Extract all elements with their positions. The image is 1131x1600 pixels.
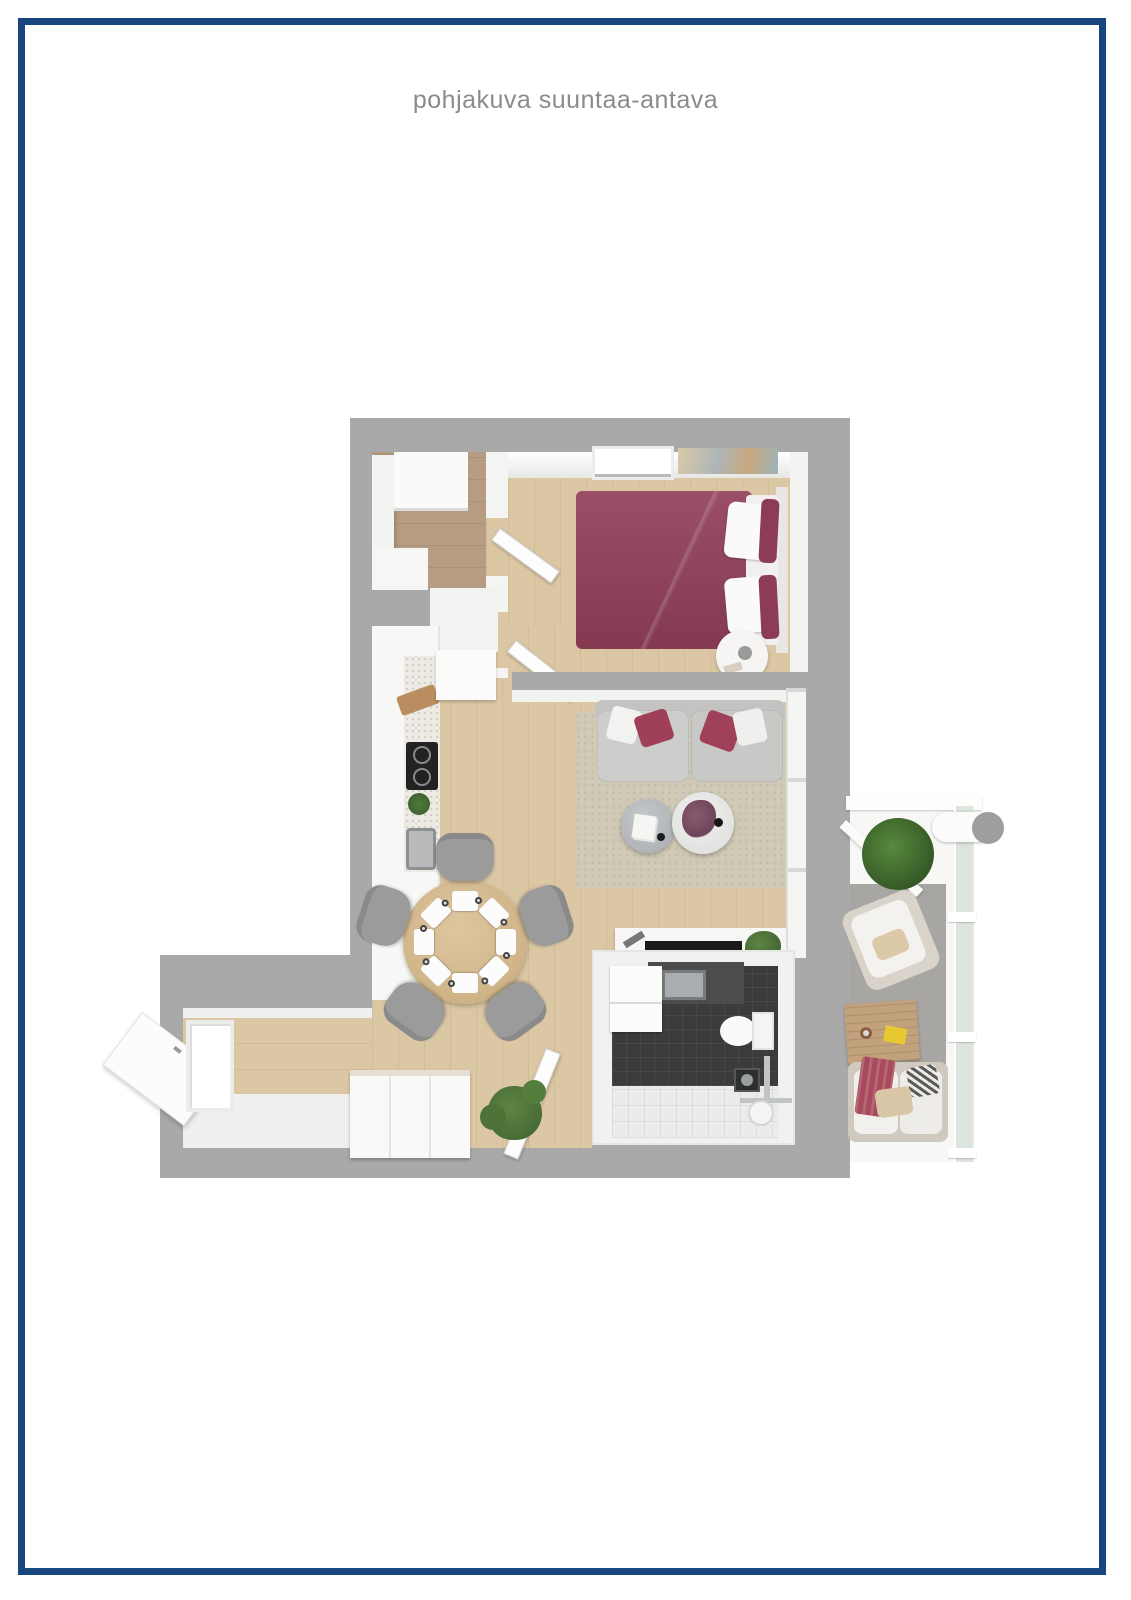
double-bed	[576, 487, 784, 653]
balcony-cup	[860, 1027, 873, 1040]
sofa	[595, 700, 785, 790]
shower-pipe	[764, 1056, 770, 1104]
magazines	[631, 814, 656, 841]
railing-post	[948, 912, 976, 922]
entry-sideboard	[350, 1070, 470, 1158]
balcony-coffee-table	[844, 1000, 920, 1065]
kitchen-upper-cabinet	[436, 650, 496, 700]
washing-machine	[610, 966, 662, 1032]
bedroom-wall-art	[678, 448, 778, 474]
living-room-window-wall	[786, 688, 806, 958]
place-setting	[496, 929, 516, 955]
bed-duvet	[576, 491, 752, 649]
place-setting	[452, 891, 478, 911]
floor-drain	[734, 1068, 760, 1092]
wall-below-closet	[430, 588, 498, 652]
closet-cabinet-lower	[372, 548, 428, 590]
entry-floor-plant	[488, 1086, 542, 1140]
tv-remote	[623, 931, 645, 949]
balcony-pipe-cap	[972, 812, 1004, 844]
page: pohjakuva suuntaa-antava	[0, 0, 1131, 1600]
black-vase	[714, 818, 723, 827]
bedroom-window	[592, 446, 674, 480]
flower-arrangement	[682, 800, 716, 838]
bedroom-right-wall	[790, 452, 808, 678]
kitchen-herb-plant	[408, 793, 430, 815]
bathroom-sink	[662, 970, 706, 1000]
toilet-bowl	[720, 1016, 756, 1046]
entry-window	[186, 1020, 234, 1112]
place-setting	[452, 973, 478, 993]
closet-cabinet-top	[394, 452, 468, 511]
bedside-lamp	[738, 646, 752, 660]
railing-post	[948, 1032, 976, 1042]
toilet-tank	[752, 1012, 774, 1050]
shower-head	[748, 1100, 774, 1126]
balcony-bush-plant	[862, 818, 934, 890]
railing-post	[948, 1148, 976, 1158]
bed-pillow-red-1	[758, 499, 779, 564]
entry-inner-wall	[183, 1008, 372, 1018]
kitchen-sink	[406, 828, 436, 870]
cooktop	[406, 742, 438, 790]
bed-pillow-red-2	[758, 575, 779, 640]
place-setting	[414, 929, 434, 955]
balcony-glass-railing	[954, 806, 974, 1162]
dining-chair	[436, 833, 494, 881]
coffee-table-gray	[621, 799, 675, 853]
page-title: pohjakuva suuntaa-antava	[0, 86, 1131, 115]
coffee-table-white	[672, 792, 734, 854]
yellow-book	[883, 1025, 907, 1045]
coffee-cup	[657, 833, 665, 841]
balcony-beige-pillow	[874, 1086, 914, 1119]
closet-cabinet-left	[372, 455, 394, 550]
